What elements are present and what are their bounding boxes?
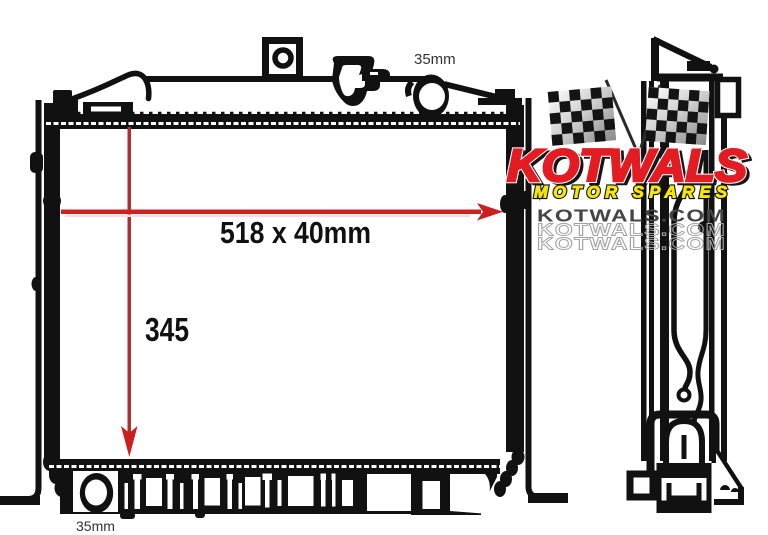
svg-text:345: 345 [145,311,189,348]
svg-text:35mm: 35mm [414,51,456,68]
svg-text:518 x 40mm: 518 x 40mm [220,215,371,250]
svg-text:35mm: 35mm [76,518,115,534]
svg-text:KOTWALS.COM: KOTWALS.COM [537,234,726,254]
